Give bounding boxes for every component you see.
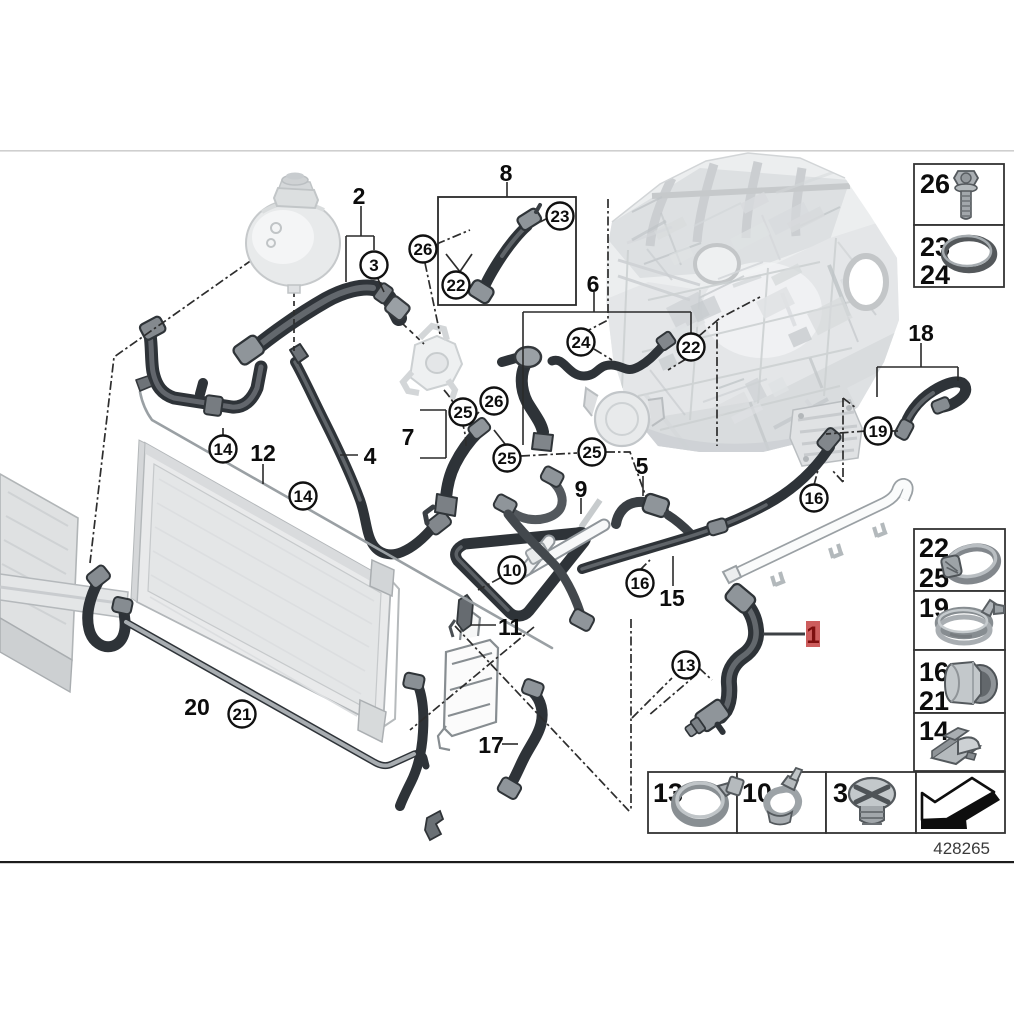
- svg-text:12: 12: [250, 440, 276, 466]
- svg-text:428265: 428265: [933, 839, 990, 858]
- svg-text:26: 26: [920, 169, 950, 199]
- svg-text:22: 22: [682, 338, 701, 357]
- svg-text:8: 8: [500, 160, 513, 186]
- svg-text:25: 25: [583, 443, 602, 462]
- svg-text:22: 22: [447, 276, 466, 295]
- svg-text:16: 16: [805, 489, 824, 508]
- svg-text:25: 25: [454, 403, 473, 422]
- svg-text:14: 14: [294, 487, 313, 506]
- svg-text:7: 7: [402, 424, 415, 450]
- svg-text:11: 11: [498, 614, 523, 640]
- svg-text:26: 26: [485, 392, 504, 411]
- svg-text:10: 10: [503, 561, 522, 580]
- svg-text:19: 19: [869, 422, 888, 441]
- svg-text:25: 25: [498, 449, 517, 468]
- svg-text:6: 6: [587, 271, 600, 297]
- svg-text:16: 16: [631, 574, 650, 593]
- svg-text:20: 20: [184, 694, 210, 720]
- svg-text:18: 18: [908, 320, 934, 346]
- svg-text:3: 3: [369, 256, 378, 275]
- svg-text:19: 19: [919, 593, 949, 623]
- svg-text:23: 23: [551, 207, 570, 226]
- svg-text:15: 15: [659, 585, 685, 611]
- svg-text:5: 5: [636, 453, 649, 479]
- svg-text:24: 24: [572, 333, 591, 352]
- svg-text:13: 13: [677, 656, 696, 675]
- svg-text:9: 9: [575, 476, 588, 502]
- svg-text:2: 2: [353, 183, 366, 209]
- svg-text:14: 14: [214, 440, 233, 459]
- svg-text:17: 17: [478, 732, 504, 758]
- svg-text:1: 1: [806, 622, 819, 649]
- svg-text:3: 3: [833, 778, 848, 808]
- svg-text:26: 26: [414, 240, 433, 259]
- svg-text:4: 4: [364, 443, 377, 469]
- svg-text:21: 21: [233, 705, 252, 724]
